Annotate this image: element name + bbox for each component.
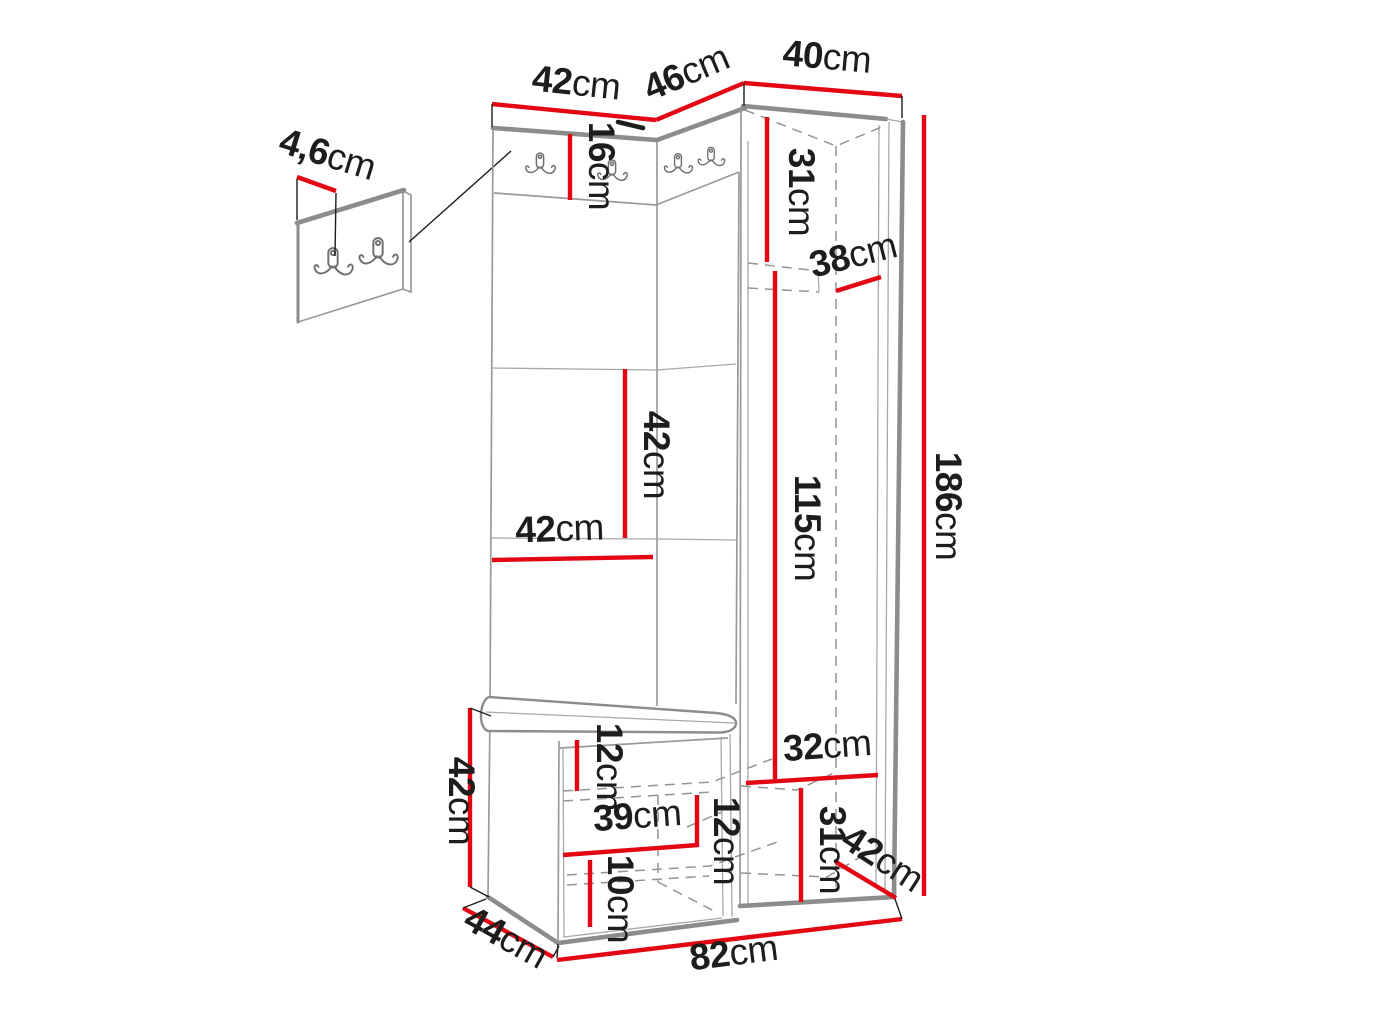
dim-label-bench-shelf-width: 39cm xyxy=(592,792,683,839)
dim-label-cabinet-top-section: 31cm xyxy=(781,148,822,236)
dim-label-hook-strip-height: 16cm xyxy=(581,122,622,210)
dim-label-bench-shelf-clearance: 12cm xyxy=(706,797,747,885)
hook-strip xyxy=(526,147,725,180)
dim-label-bench-bottom-clearance: 10cm xyxy=(600,855,641,943)
dim-line-panel-left-width xyxy=(492,104,656,120)
dim-label-base-width: 82cm xyxy=(687,927,780,978)
detail-callout-line xyxy=(409,151,511,242)
dim-line-panel-tile-width xyxy=(492,557,653,560)
dim-label-hanging-section: 115cm xyxy=(787,475,828,582)
dim-line-hook-panel-thickness xyxy=(297,177,336,191)
dim-label-bench-height: 42cm xyxy=(441,757,482,845)
dim-label-hook-panel-thickness: 4,6cm xyxy=(275,120,381,188)
dim-label-total-height: 186cm xyxy=(928,452,969,561)
diagram-canvas: 42cm 46cm 40cm 16cm 4,6cm 31cm 38cm 186c… xyxy=(0,0,1379,1034)
dim-label-cabinet-width: 40cm xyxy=(781,32,873,81)
dim-line-shelf-depth xyxy=(836,277,881,291)
dimension-labels: 42cm 46cm 40cm 16cm 4,6cm 31cm 38cm 186c… xyxy=(275,32,969,978)
furniture-dimension-diagram: 42cm 46cm 40cm 16cm 4,6cm 31cm 38cm 186c… xyxy=(0,0,1379,1034)
dim-label-panel-left-width: 42cm xyxy=(530,58,622,108)
dim-line-cabinet-width xyxy=(744,83,902,96)
dim-line-bench-shelf-width xyxy=(563,845,698,855)
dim-label-panel-mid-width: 46cm xyxy=(637,36,734,108)
dim-label-panel-tile-width: 42cm xyxy=(515,506,605,550)
dim-label-cabinet-bottom-shelf: 32cm xyxy=(782,722,873,769)
dim-line-cabinet-bottom-shelf xyxy=(746,775,878,783)
dim-label-panel-tile-height: 42cm xyxy=(636,411,677,499)
hook-panel-detail xyxy=(297,151,511,322)
